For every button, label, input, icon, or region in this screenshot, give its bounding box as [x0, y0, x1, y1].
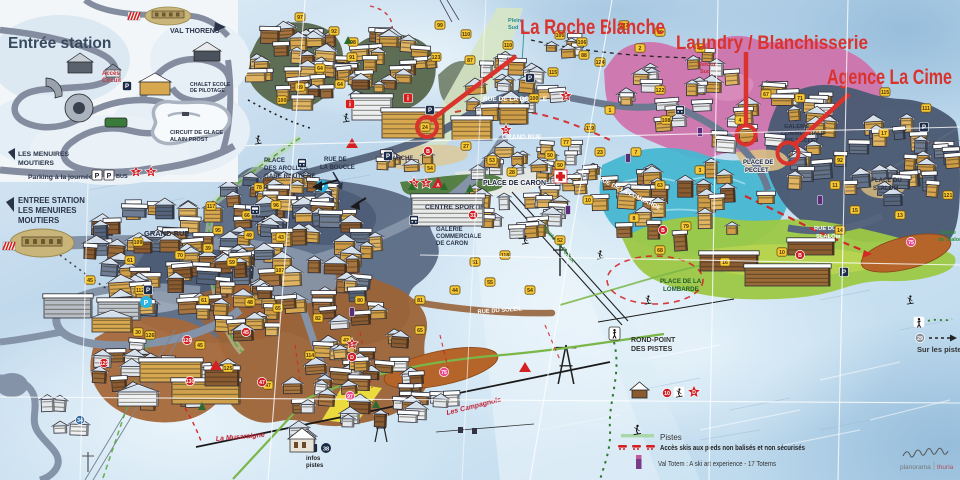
svg-text:Retour: Retour	[698, 62, 717, 68]
svg-text:Sud: Sud	[700, 69, 710, 75]
svg-text:planorama: planorama	[900, 464, 931, 471]
svg-text:7: 7	[635, 150, 638, 156]
svg-text:PLACE DE LA: PLACE DE LA	[660, 278, 702, 285]
svg-text:GARE ROUTIÈRE: GARE ROUTIÈRE	[264, 172, 316, 180]
svg-text:CIRCUIT DE GLACE: CIRCUIT DE GLACE	[170, 130, 223, 136]
svg-text:126: 126	[146, 333, 155, 339]
svg-text:DES PISTES: DES PISTES	[631, 346, 673, 353]
svg-text:DE PILOTAGE: DE PILOTAGE	[190, 88, 225, 94]
svg-text:14: 14	[837, 228, 843, 234]
svg-text:P: P	[386, 154, 390, 160]
svg-text:109: 109	[134, 240, 143, 246]
svg-text:P: P	[125, 84, 129, 90]
svg-text:44: 44	[452, 288, 458, 294]
svg-text:29: 29	[917, 336, 923, 342]
svg-text:P: P	[528, 76, 532, 82]
svg-text:ROND-POINT: ROND-POINT	[631, 337, 676, 344]
svg-text:82: 82	[315, 316, 321, 322]
svg-text:D: D	[149, 170, 153, 176]
svg-text:47: 47	[259, 380, 265, 386]
svg-text:Sur les pistes: Sur les pistes	[917, 345, 960, 354]
svg-text:PLACE DE CARON: PLACE DE CARON	[483, 180, 546, 187]
svg-text:LA BOUCLE: LA BOUCLE	[320, 165, 355, 171]
svg-text:23: 23	[597, 150, 603, 156]
svg-text:110: 110	[462, 32, 470, 38]
svg-text:79: 79	[683, 224, 689, 230]
svg-text:50: 50	[547, 153, 553, 159]
svg-text:B: B	[798, 253, 802, 259]
svg-text:24: 24	[422, 125, 428, 131]
svg-text:65: 65	[275, 306, 281, 312]
svg-text:4: 4	[739, 118, 742, 124]
svg-text:A: A	[436, 183, 440, 189]
svg-text:17: 17	[881, 131, 887, 137]
svg-text:61: 61	[127, 258, 133, 264]
svg-text:pistes: pistes	[306, 463, 324, 469]
svg-text:100: 100	[530, 96, 539, 102]
svg-text:28: 28	[509, 170, 515, 176]
svg-text:111: 111	[922, 106, 930, 112]
svg-text:64: 64	[337, 82, 343, 88]
svg-text:10: 10	[585, 198, 591, 204]
svg-text:59: 59	[229, 260, 235, 266]
svg-text:71: 71	[797, 96, 803, 102]
svg-text:10: 10	[779, 250, 785, 256]
svg-text:PLACE DE: PLACE DE	[743, 160, 773, 166]
svg-text:Circuit: Circuit	[102, 78, 121, 84]
svg-text:107: 107	[276, 268, 285, 274]
svg-text:106: 106	[578, 40, 587, 46]
svg-text:115: 115	[881, 90, 889, 96]
svg-text:SLALOM: SLALOM	[873, 186, 898, 192]
svg-text:ARCHE: ARCHE	[392, 156, 413, 162]
svg-text:3: 3	[699, 168, 702, 174]
svg-text:VAL THORENS: VAL THORENS	[170, 28, 220, 35]
svg-text:PLACE DU: PLACE DU	[871, 178, 902, 184]
svg-text:67: 67	[763, 92, 769, 98]
svg-text:P: P	[144, 300, 149, 307]
svg-text:11: 11	[832, 183, 838, 189]
svg-text:130: 130	[186, 379, 195, 385]
svg-text:65: 65	[417, 328, 423, 334]
svg-text:thuria: thuria	[937, 464, 954, 471]
svg-text:LES MENUIRES: LES MENUIRES	[18, 206, 76, 215]
svg-text:Pistes: Pistes	[660, 433, 682, 442]
svg-text:92: 92	[331, 29, 337, 35]
svg-text:i: i	[349, 102, 351, 109]
svg-text:B: B	[661, 228, 665, 234]
svg-text:61: 61	[201, 298, 207, 304]
svg-text:125: 125	[100, 361, 109, 367]
svg-text:87: 87	[467, 58, 473, 64]
svg-text:27: 27	[463, 144, 469, 150]
svg-text:P: P	[95, 173, 100, 180]
svg-text:P: P	[107, 173, 112, 180]
svg-text:115: 115	[549, 70, 557, 76]
svg-text:112: 112	[136, 288, 144, 294]
svg-text:91: 91	[349, 55, 355, 61]
svg-text:92: 92	[837, 158, 843, 164]
svg-text:Accès skis aux pieds non balis: Accès skis aux pieds non balisés et non …	[660, 443, 805, 452]
svg-text:B: B	[426, 149, 430, 155]
svg-text:GALERIE: GALERIE	[784, 124, 810, 130]
svg-text:ALAIN PROST: ALAIN PROST	[170, 137, 208, 143]
svg-text:75: 75	[441, 370, 447, 376]
svg-text:121: 121	[944, 193, 953, 199]
svg-text:Val Totem : A ski art experien: Val Totem : A ski art experience - 17 To…	[658, 459, 776, 468]
svg-text:126: 126	[183, 338, 192, 344]
svg-text:Laundry / Blanchisserie: Laundry / Blanchisserie	[676, 33, 868, 54]
svg-text:LOMBARDE: LOMBARDE	[663, 286, 699, 293]
svg-text:97: 97	[297, 15, 303, 21]
svg-text:La Roche Blanche: La Roche Blanche	[520, 16, 665, 39]
svg-text:13: 13	[897, 213, 903, 219]
svg-text:10: 10	[664, 391, 670, 397]
svg-text:45: 45	[87, 278, 93, 284]
svg-text:P: P	[146, 288, 150, 294]
svg-text:PLACE: PLACE	[264, 157, 285, 164]
svg-text:LES MENUIRES: LES MENUIRES	[18, 151, 69, 158]
svg-text:99: 99	[437, 23, 443, 29]
svg-text:43: 43	[278, 235, 284, 241]
svg-text:1: 1	[609, 108, 612, 114]
svg-text:2: 2	[639, 46, 642, 52]
svg-text:ENTREE STATION: ENTREE STATION	[18, 196, 85, 205]
svg-text:125: 125	[224, 366, 233, 372]
svg-text:45: 45	[243, 330, 249, 336]
svg-text:de Slalom: de Slalom	[938, 237, 960, 243]
svg-text:108: 108	[662, 118, 671, 124]
svg-text:BUS: BUS	[116, 174, 128, 180]
svg-text:Parking à la journée: Parking à la journée	[28, 174, 93, 181]
svg-text:RUE DE: RUE DE	[324, 157, 347, 163]
svg-text:88: 88	[581, 53, 587, 59]
svg-text:MOUTIERS: MOUTIERS	[18, 160, 54, 167]
svg-text:63: 63	[657, 183, 663, 189]
svg-text:Entrée station: Entrée station	[8, 35, 111, 52]
svg-text:78: 78	[256, 185, 262, 191]
svg-text:GRAND RUE: GRAND RUE	[144, 229, 189, 238]
svg-text:75: 75	[908, 240, 914, 246]
svg-text:68: 68	[657, 248, 663, 254]
svg-text:114: 114	[306, 353, 314, 359]
svg-text:30: 30	[135, 330, 141, 336]
svg-text:D: D	[692, 390, 696, 396]
svg-text:SLALOM: SLALOM	[816, 234, 841, 240]
svg-text:123: 123	[432, 55, 441, 61]
svg-text:RUE DU: RUE DU	[814, 226, 836, 232]
svg-text:8: 8	[633, 216, 636, 222]
svg-text:124: 124	[596, 60, 605, 66]
svg-text:117: 117	[207, 204, 215, 210]
svg-text:52: 52	[557, 238, 563, 244]
svg-text:infos: infos	[306, 456, 321, 462]
svg-text:D: D	[350, 355, 354, 361]
svg-text:i: i	[407, 96, 409, 103]
svg-text:66: 66	[244, 213, 250, 219]
svg-text:Stade: Stade	[941, 230, 956, 236]
svg-text:45: 45	[197, 343, 203, 349]
svg-text:48: 48	[247, 300, 253, 306]
svg-text:DE CARON: DE CARON	[436, 241, 468, 247]
svg-text:77: 77	[563, 140, 569, 146]
svg-text:54: 54	[427, 166, 433, 172]
svg-text:122: 122	[656, 88, 665, 94]
svg-text:50: 50	[557, 163, 563, 169]
svg-text:81: 81	[417, 298, 423, 304]
svg-text:D: D	[504, 128, 508, 134]
svg-text:38: 38	[323, 447, 329, 453]
svg-text:55: 55	[487, 280, 493, 286]
svg-text:Accès: Accès	[102, 71, 120, 77]
svg-text:100: 100	[278, 98, 287, 104]
svg-text:64: 64	[317, 66, 323, 72]
svg-text:49: 49	[246, 233, 252, 239]
svg-text:39: 39	[205, 246, 211, 252]
svg-text:80: 80	[357, 298, 363, 304]
svg-text:PECLET: PECLET	[745, 168, 769, 174]
svg-text:15: 15	[852, 208, 858, 214]
svg-text:P: P	[428, 108, 432, 114]
svg-text:70: 70	[177, 253, 183, 259]
svg-text:110: 110	[504, 43, 512, 49]
svg-text:MOUTIERS: MOUTIERS	[18, 216, 59, 225]
svg-text:54: 54	[527, 288, 533, 294]
svg-text:96: 96	[273, 203, 279, 209]
svg-text:95: 95	[215, 228, 221, 234]
svg-text:GALERIE: GALERIE	[436, 227, 463, 233]
svg-text:53: 53	[489, 158, 495, 164]
svg-text:Sud: Sud	[508, 25, 518, 31]
